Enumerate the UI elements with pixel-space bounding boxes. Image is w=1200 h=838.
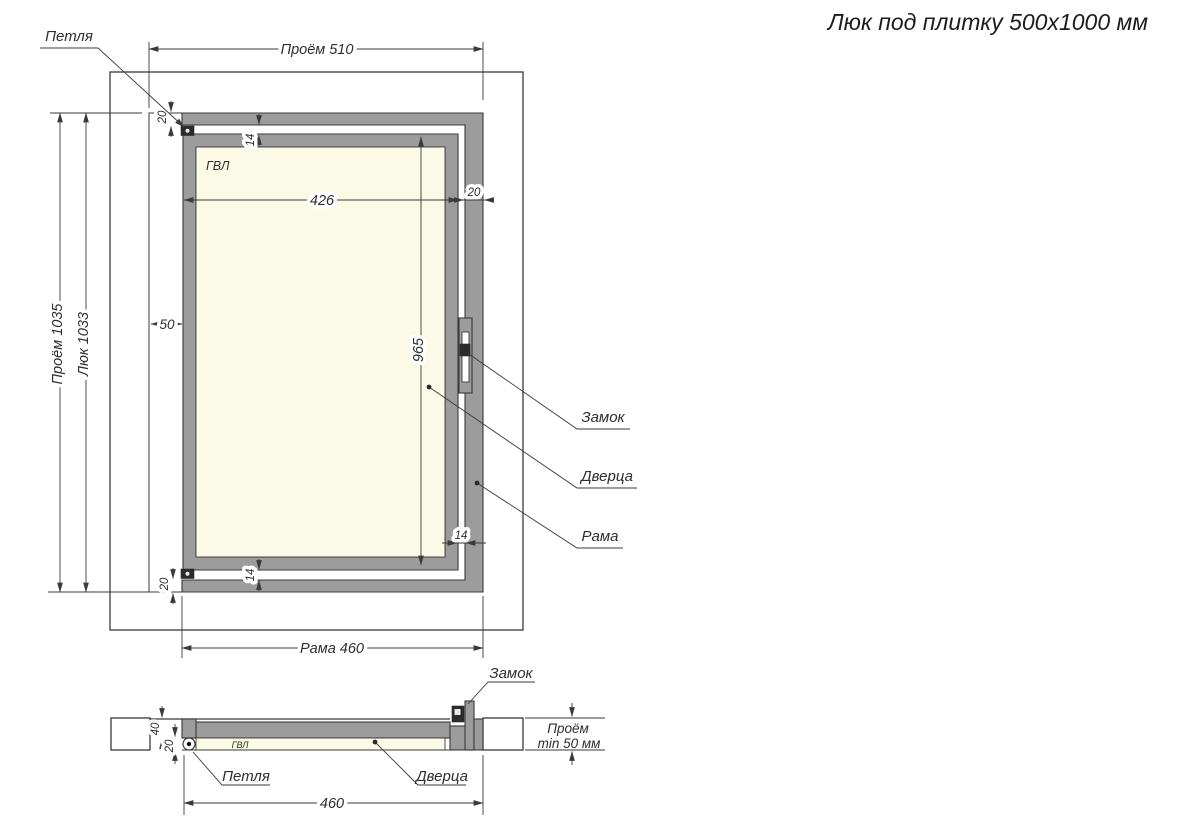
svg-text:965: 965 <box>411 337 427 362</box>
svg-text:Проём 510: Проём 510 <box>281 42 354 58</box>
svg-text:min 50 мм: min 50 мм <box>538 736 601 751</box>
svg-text:Дверца: Дверца <box>414 768 468 785</box>
svg-text:Замок: Замок <box>489 665 533 682</box>
hinge-icon-section <box>182 719 196 750</box>
front-view: ГВЛ Проём 510 Проём 1035 <box>40 28 637 658</box>
svg-text:Замок: Замок <box>581 409 625 426</box>
section-frame-band <box>184 722 450 738</box>
drawing-title: Люк под плитку 500x1000 мм <box>826 9 1148 35</box>
svg-text:426: 426 <box>310 193 335 209</box>
svg-text:Проём: Проём <box>547 721 589 736</box>
gvl-label-section: ГВЛ <box>232 740 250 750</box>
svg-text:Петля: Петля <box>222 768 270 785</box>
svg-text:50: 50 <box>159 317 175 332</box>
svg-text:40: 40 <box>150 722 162 735</box>
svg-text:Петля: Петля <box>45 28 93 45</box>
dim-hatch-height: Люк 1033 <box>76 113 92 592</box>
lock-icon-front <box>459 318 472 393</box>
svg-text:Рама 460: Рама 460 <box>300 641 364 657</box>
svg-text:20: 20 <box>164 739 176 753</box>
svg-text:14: 14 <box>245 134 257 147</box>
svg-text:14: 14 <box>455 530 468 542</box>
dim-opening-depth: Проём min 50 мм <box>525 703 605 765</box>
svg-text:Рама: Рама <box>582 528 619 545</box>
svg-text:460: 460 <box>320 796 344 812</box>
section-wall-left <box>111 718 150 750</box>
hinge-bottom-icon <box>181 569 194 579</box>
svg-text:Люк 1033: Люк 1033 <box>76 312 92 377</box>
gvl-label-front: ГВЛ <box>206 159 230 173</box>
section-view: ГВЛ 40 20 <box>111 665 605 815</box>
hinge-top-icon <box>181 126 194 136</box>
label-hinge-section: Петля <box>193 752 270 785</box>
technical-drawing: Люк под плитку 500x1000 мм ГВЛ <box>0 0 1200 838</box>
drawing-page: Люк под плитку 500x1000 мм ГВЛ <box>0 0 1200 838</box>
svg-text:Дверца: Дверца <box>579 468 633 485</box>
label-lock-section: Замок <box>468 665 535 704</box>
section-wall-right <box>483 718 523 750</box>
svg-text:Проём 1035: Проём 1035 <box>50 303 66 385</box>
dim-frame-depth: 40 <box>150 706 162 750</box>
svg-text:20: 20 <box>467 187 481 199</box>
svg-text:20: 20 <box>159 577 171 591</box>
svg-text:14: 14 <box>245 569 257 582</box>
dim-panel-thickness: 20 <box>164 724 176 764</box>
